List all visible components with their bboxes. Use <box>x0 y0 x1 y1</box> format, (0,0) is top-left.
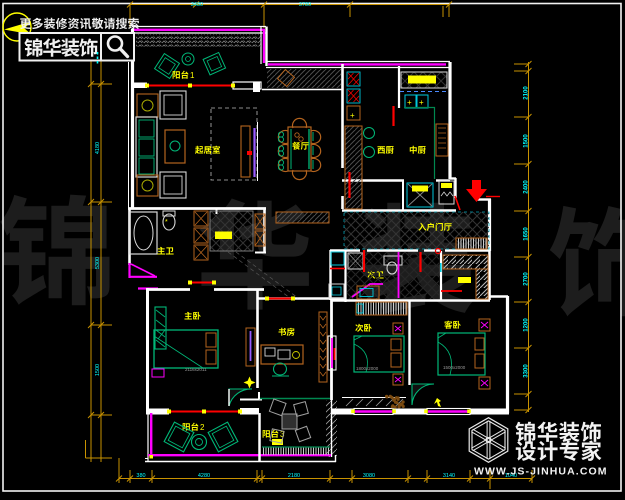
svg-text:2116x2011: 2116x2011 <box>185 367 207 372</box>
svg-text:2180: 2180 <box>288 473 300 479</box>
svg-text:+: + <box>419 98 424 107</box>
svg-text:4280: 4280 <box>198 473 210 479</box>
svg-text:3140: 3140 <box>443 473 455 479</box>
svg-text:+: + <box>350 111 355 120</box>
svg-text:1500x2000: 1500x2000 <box>443 365 466 370</box>
svg-text:5300: 5300 <box>95 257 101 269</box>
svg-text:2100: 2100 <box>524 86 530 100</box>
svg-text:1800x2000: 1800x2000 <box>356 366 379 371</box>
svg-text:1: 1 <box>190 71 195 80</box>
svg-text:1500: 1500 <box>524 134 530 148</box>
svg-text:4180: 4180 <box>95 142 101 154</box>
svg-text:*: * <box>165 219 168 226</box>
svg-text:3480: 3480 <box>191 2 203 8</box>
svg-text:3780: 3780 <box>299 2 311 8</box>
svg-text:1200: 1200 <box>524 318 530 332</box>
svg-text:WWW.JS-JINHUA.COM: WWW.JS-JINHUA.COM <box>474 466 608 478</box>
svg-text:+: + <box>407 98 412 107</box>
svg-text:1650: 1650 <box>524 227 530 241</box>
svg-text:380: 380 <box>136 473 145 479</box>
svg-text:3080: 3080 <box>363 473 375 479</box>
svg-text:1500: 1500 <box>95 364 101 376</box>
svg-text:2700: 2700 <box>524 272 530 286</box>
svg-text:3300: 3300 <box>524 364 530 378</box>
svg-text:2: 2 <box>200 423 205 432</box>
svg-text:2400: 2400 <box>524 180 530 194</box>
